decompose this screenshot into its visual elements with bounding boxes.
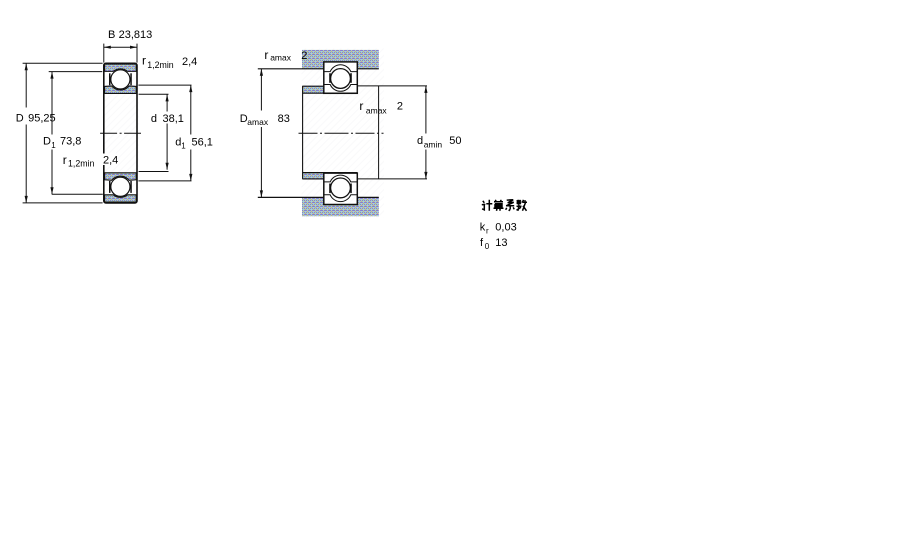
svg-text:d: d: [417, 135, 423, 147]
svg-text:amax: amax: [270, 52, 292, 62]
svg-text:13: 13: [495, 237, 507, 249]
svg-text:2,4: 2,4: [182, 56, 197, 68]
svg-text:38,1: 38,1: [163, 113, 184, 125]
svg-text:73,8: 73,8: [60, 136, 81, 148]
svg-text:1: 1: [51, 141, 56, 150]
svg-text:k: k: [480, 222, 486, 234]
svg-text:56,1: 56,1: [192, 136, 213, 148]
svg-text:0: 0: [485, 242, 490, 251]
svg-text:r: r: [486, 227, 489, 236]
svg-text:50: 50: [449, 135, 461, 147]
svg-text:r: r: [142, 53, 146, 67]
svg-text:0,03: 0,03: [495, 222, 516, 234]
svg-text:amax: amax: [247, 117, 269, 127]
svg-text:B: B: [108, 29, 115, 41]
svg-text:23,813: 23,813: [119, 29, 153, 41]
svg-text:1,2min: 1,2min: [68, 158, 95, 168]
svg-text:d: d: [151, 113, 157, 125]
svg-text:2: 2: [397, 101, 403, 113]
svg-text:amin: amin: [424, 140, 443, 150]
svg-text:2,4: 2,4: [103, 154, 118, 166]
svg-text:1,2min: 1,2min: [147, 60, 174, 70]
svg-text:D: D: [43, 136, 51, 148]
svg-text:D: D: [16, 113, 24, 125]
svg-text:83: 83: [278, 113, 290, 125]
svg-text:2: 2: [301, 50, 307, 62]
svg-text:r: r: [63, 153, 67, 167]
svg-text:1: 1: [181, 142, 186, 151]
svg-text:amax: amax: [366, 105, 388, 115]
svg-text:r: r: [359, 99, 363, 113]
svg-text:r: r: [264, 48, 268, 62]
